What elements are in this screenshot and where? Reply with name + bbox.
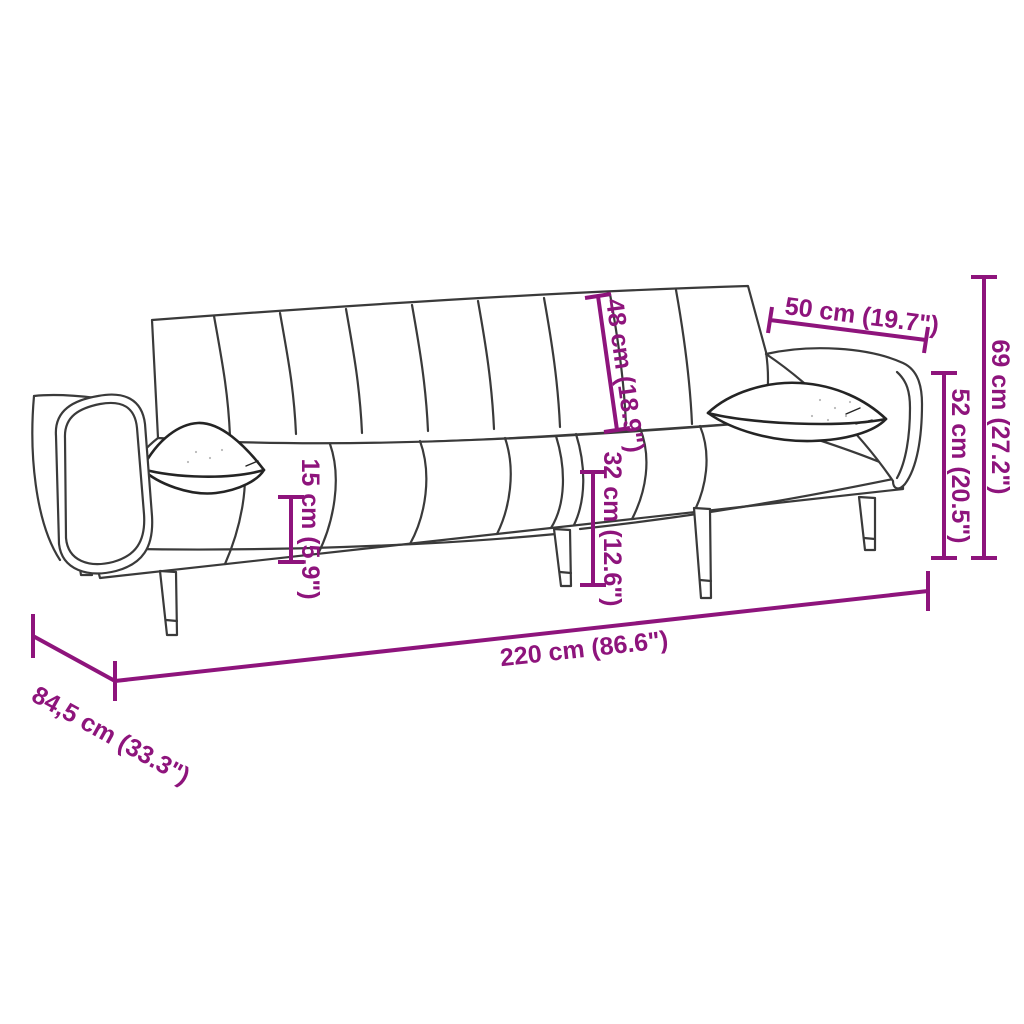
diagram-svg: 48 cm (18.9") 50 cm (19.7") 69 cm (27.2"… (0, 0, 1024, 1024)
dimension-label-overall-height: 69 cm (27.2") (986, 340, 1014, 495)
arm-left-outer-edge (32, 396, 60, 560)
dimension-overall-depth: 84,5 cm (33.3") (27, 614, 194, 790)
dimension-overall-width: 220 cm (86.6") (115, 571, 928, 701)
leg-cap-line (864, 538, 875, 539)
sofa-arm-left (32, 395, 152, 574)
backrest-outline (152, 286, 768, 444)
dimension-label-seat-height: 15 cm (5.9") (296, 458, 324, 599)
dimension-overall-height: 69 cm (27.2") (971, 277, 1014, 558)
sofa-illustration (32, 286, 922, 635)
dimension-line-overall-depth (33, 614, 115, 681)
dimension-diagram: 48 cm (18.9") 50 cm (19.7") 69 cm (27.2"… (0, 0, 1024, 1024)
sofa-backrest (152, 286, 768, 444)
sofa-leg (694, 508, 711, 598)
leg-cap-line (560, 572, 571, 573)
leg-cap-line (166, 620, 177, 621)
dimension-label-seat-front-height: 32 cm (12.6") (598, 452, 626, 607)
dimension-cushion-width: 50 cm (19.7") (768, 292, 941, 353)
sofa-leg (160, 571, 177, 635)
sofa-leg (859, 497, 875, 550)
dimension-label-armrest-height: 52 cm (20.5") (946, 389, 974, 544)
dimension-line-overall-width (115, 571, 928, 701)
dimension-armrest-height: 52 cm (20.5") (931, 373, 974, 558)
dimension-label-overall-width: 220 cm (86.6") (499, 626, 670, 672)
sofa-leg (554, 529, 571, 586)
dimension-label-overall-depth: 84,5 cm (33.3") (27, 681, 194, 791)
leg-cap-line (700, 580, 711, 581)
